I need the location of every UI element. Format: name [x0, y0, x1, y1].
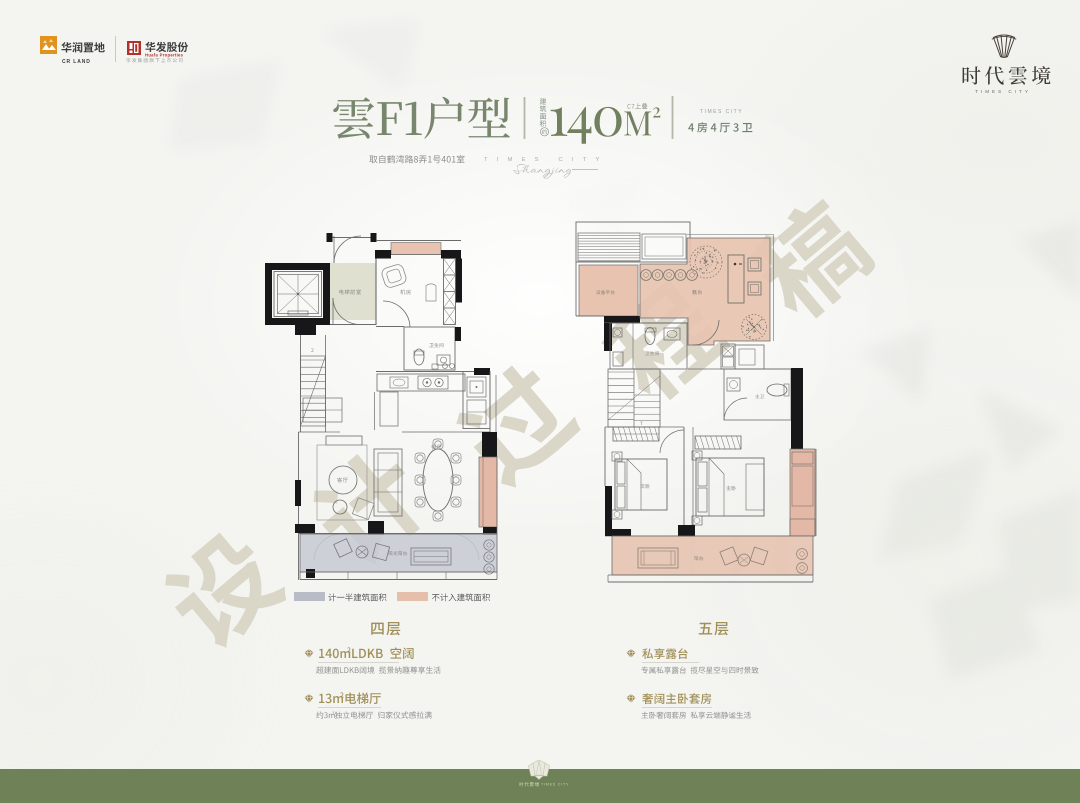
svg-text:CR LAND: CR LAND [62, 59, 91, 65]
svg-text:TIMES CITY: TIMES CITY [484, 157, 609, 163]
svg-text:TIMES CITY: TIMES CITY [975, 89, 1031, 94]
svg-text:TIMES CITY: TIMES CITY [700, 109, 743, 115]
svg-text:TIMES CITY: TIMES CITY [541, 783, 569, 787]
svg-text:Huafa Properties: Huafa Properties [145, 53, 184, 58]
